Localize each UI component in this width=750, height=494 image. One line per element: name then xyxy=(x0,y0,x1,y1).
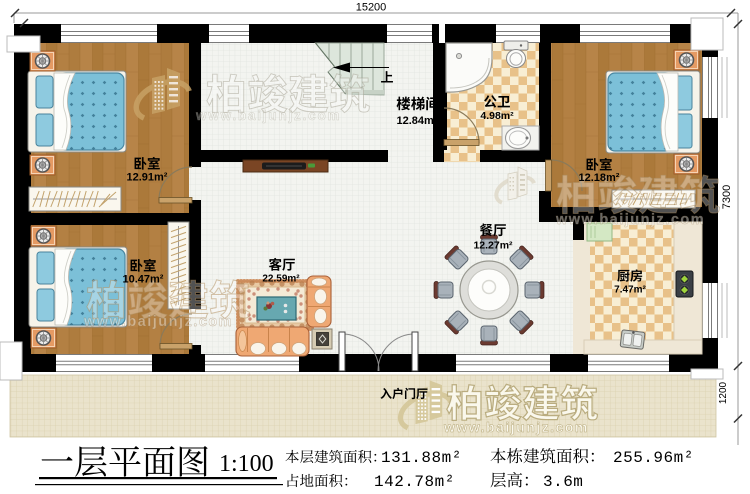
svg-text:15200: 15200 xyxy=(356,2,387,14)
svg-text:12.18m²: 12.18m² xyxy=(579,172,620,184)
svg-text:10.47m²: 10.47m² xyxy=(123,274,164,286)
svg-text:3.6m: 3.6m xyxy=(543,473,583,491)
svg-text:7300: 7300 xyxy=(721,185,733,209)
svg-text:www.baijunjz.com: www.baijunjz.com xyxy=(83,314,233,330)
svg-text:www.baijunjz.com: www.baijunjz.com xyxy=(195,108,341,123)
svg-text:1200: 1200 xyxy=(718,381,729,404)
svg-text:www.baijunjz.com: www.baijunjz.com xyxy=(443,419,589,435)
svg-text:22.59m²: 22.59m² xyxy=(262,274,300,285)
svg-text:4.98m²: 4.98m² xyxy=(480,110,514,122)
svg-text:1:100: 1:100 xyxy=(219,451,274,477)
svg-text:12.27m²: 12.27m² xyxy=(473,240,513,252)
svg-text:12.84m²: 12.84m² xyxy=(397,115,438,127)
svg-text:131.88m²: 131.88m² xyxy=(381,449,462,467)
svg-text:255.96m²: 255.96m² xyxy=(613,449,694,467)
svg-text:142.78m²: 142.78m² xyxy=(374,473,455,491)
svg-text:12.91m²: 12.91m² xyxy=(127,172,168,184)
svg-text:7.47m²: 7.47m² xyxy=(614,285,646,296)
svg-text:www.baijunjz.com: www.baijunjz.com xyxy=(555,212,705,228)
